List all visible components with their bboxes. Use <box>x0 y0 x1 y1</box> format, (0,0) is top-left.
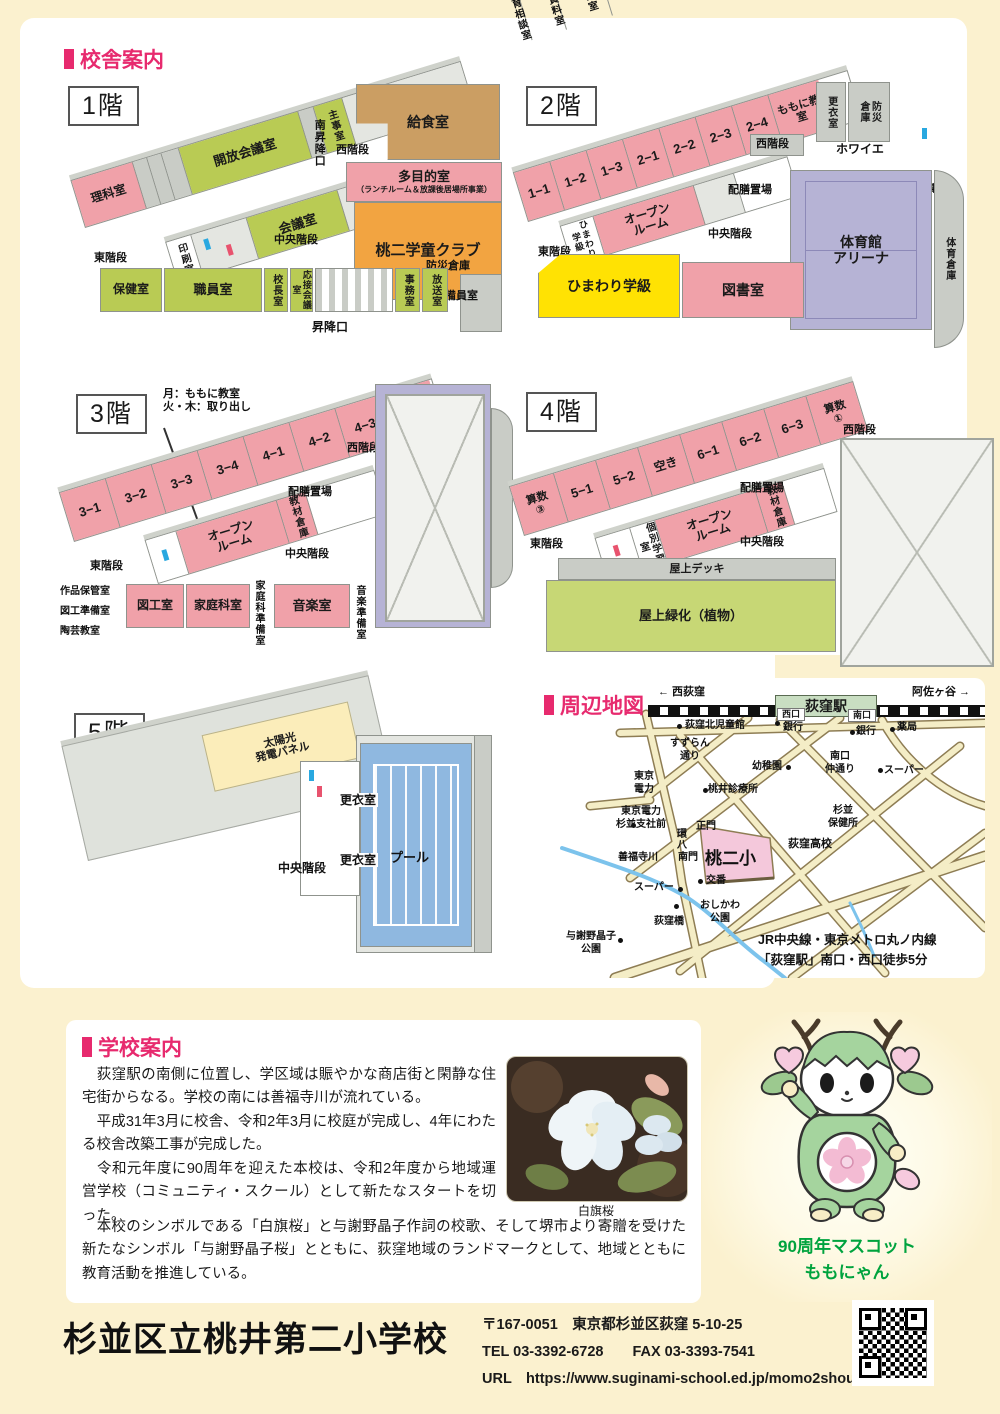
curve-band-3f <box>491 408 513 588</box>
floor-5f: 5階 太陽光 発電パネル 西階段 更衣室 更衣室 中央階段 プール <box>60 665 530 990</box>
floor-2f: 2階 1−1 1−2 1−3 2−1 2−2 2−3 2−4 ももに教室 ひまわ… <box>518 78 983 356</box>
label-higashi-kaidan-3f: 東階段 <box>90 560 123 573</box>
label-chuo-kaidan-4f: 中央階段 <box>740 536 784 549</box>
floor-tag-4f: 4階 <box>526 392 597 432</box>
photo-caption: 白旗桜 <box>506 1204 686 1218</box>
section-school-guide: 学校案内 <box>82 1032 182 1062</box>
mascot-area: 90周年マスコット ももにゃん <box>702 1012 992 1302</box>
poi-yochien: 幼稚園 <box>752 761 782 774</box>
map-panel: 周辺地図 ← 西荻窪 阿佐ヶ谷 → 荻窪駅 西口 南口 荻窪北児童館 銀行 銀行… <box>530 678 985 978</box>
qr-finder <box>859 1356 881 1378</box>
flower-photo-art <box>507 1057 687 1201</box>
label-minami-shoko: 南昇降口 <box>312 103 325 183</box>
poi-zenpukuji: 善福寺川 <box>618 852 658 865</box>
qr-code <box>852 1300 934 1386</box>
room-hoken: 保健室 <box>100 268 162 312</box>
room-tosho: 図書室 <box>682 262 804 318</box>
toilet-marker <box>203 238 211 250</box>
floor-4f: 4階 算数 ③ 5−1 5−2 空き 6−1 6−2 6−3 算数 ① 個別学習… <box>518 378 988 668</box>
label-koui-2: 更衣室 <box>338 853 378 867</box>
poi-nanmon: 南門 <box>678 852 698 865</box>
floor-tag-2f: 2階 <box>526 86 597 126</box>
room-kocho: 校長室 <box>264 268 288 312</box>
label-chuo-kaidan-3f: 中央階段 <box>285 548 329 561</box>
footer-address: 〒167-0051 東京都杉並区荻窪 5-10-25 <box>482 1312 855 1339</box>
poi-bank1: 銀行 <box>783 722 803 735</box>
label-rail-left: ← 西荻窪 <box>658 686 705 700</box>
poi-oshikawa: おしかわ 公園 <box>700 900 740 925</box>
room-jimu: 事務室 <box>395 268 420 312</box>
room-katei: 家庭科室 <box>186 584 250 628</box>
poi-dot <box>786 765 791 770</box>
room-taiiku-soko: 体育倉庫 <box>934 170 964 348</box>
label-chuo-kaidan-1f: 中央階段 <box>274 234 318 247</box>
toilet-marker <box>161 549 169 561</box>
room-zuko: 図工室 <box>126 584 184 628</box>
footer-tel-fax: TEL 03-3392-6728 FAX 03-3393-7541 <box>482 1339 855 1366</box>
room-kaigi: 会議室 <box>247 190 350 258</box>
label-pool: プール <box>390 850 429 866</box>
label-nishi-kaidan-2f: 西階段 <box>756 138 789 151</box>
label-chuo-kaidan-5f: 中央階段 <box>278 861 326 875</box>
shirahata-sakura-photo <box>506 1056 688 1202</box>
section-bar-icon <box>82 1037 92 1057</box>
ear-heart-left <box>775 1048 803 1073</box>
room-kaiho: 開放会議室 <box>179 112 313 194</box>
room-kyushoku: 給食室 <box>356 84 500 160</box>
poi-denryoku: 東京 電力 <box>634 771 654 796</box>
toilet-marker <box>613 545 621 557</box>
room-hoso: 放送室 <box>422 268 448 312</box>
floor-1f: 1階 理科室 開放会議室 主事室 教育相談室 郷土資料室 桃友会 学校支援本部室… <box>60 78 510 356</box>
changing-block <box>300 761 360 896</box>
qr-finder <box>905 1308 927 1330</box>
info-paragraph: 荻窪駅の南側に位置し、学区域は賑やかな商店街と閑静な住宅街からなる。学校の南には… <box>82 1064 496 1111</box>
poi-hokenjo: 杉並 保健所 <box>828 805 858 830</box>
poi-ogikubobashi: 荻窪橋 <box>654 916 684 929</box>
floor-tag-3f: 3階 <box>76 394 147 434</box>
room-ryokka: 屋上緑化（植物） <box>546 580 836 652</box>
label-higashi-kaidan-1f: 東階段 <box>94 252 127 265</box>
poi-shinryojo: 桃井診療所 <box>708 784 758 797</box>
label-ongaku-junbi: 音楽準備室 <box>353 564 365 660</box>
poi-shisha-mae: 東京電力 杉並支社前 <box>616 806 666 831</box>
qr-finder <box>859 1308 881 1330</box>
corridor-hatch <box>315 268 393 312</box>
label-haizen-2f: 配膳置場 <box>728 184 772 197</box>
poi-jidokan: 荻窪北児童館 <box>685 720 745 733</box>
toilet-marker <box>922 128 927 139</box>
room-tamokuteki: 多目的室 （ランチルーム＆放課後居場所事業） <box>346 162 502 202</box>
label-zuko-junbi: 図工準備室 <box>60 606 110 618</box>
poi-dot <box>775 721 780 726</box>
section-map: 周辺地図 <box>544 690 644 720</box>
poi-dot <box>674 904 679 909</box>
room-gym: 体育館 アリーナ <box>790 170 932 330</box>
section-title: 周辺地図 <box>560 690 644 720</box>
room-tamokuteki-title: 多目的室 <box>398 170 450 185</box>
poi-school: 桃二小 <box>705 848 756 869</box>
school-info-text-wide: 本校のシンボルである「白旗桜」と与謝野晶子作詞の校歌、そして堺市より寄贈を受けた… <box>82 1216 686 1286</box>
station-west-exit: 西口 <box>777 708 805 721</box>
poi-suzuran: すずらん 通り <box>670 738 710 763</box>
poi-dot <box>850 730 855 735</box>
section-bar-icon <box>64 49 74 69</box>
mascot-caption: 90周年マスコット ももにゃん <box>702 1234 992 1285</box>
toilet-marker <box>309 770 314 781</box>
info-paragraph: 本校のシンボルである「白旗桜」と与謝野晶子作詞の校歌、そして堺市より寄贈を受けた… <box>82 1216 686 1286</box>
label-sakuhin: 作品保管室 <box>60 586 110 598</box>
station-south-exit: 南口 <box>848 709 876 722</box>
toilet-marker <box>317 786 322 797</box>
room-tamokuteki-sub: （ランチルーム＆放課後居場所事業） <box>356 185 492 194</box>
section-title: 校舎案内 <box>80 44 164 74</box>
label-katei-junbi: 家庭科準備室 <box>252 566 264 660</box>
poi-super1: スーパー <box>884 765 924 778</box>
label-chuo-kaidan-2f: 中央階段 <box>708 228 752 241</box>
label-nishi-kaidan-4f: 西階段 <box>843 424 876 437</box>
school-info-panel: 学校案内 荻窪駅の南側に位置し、学区域は賑やかな商店街と閑静な住宅街からなる。学… <box>66 1020 701 1303</box>
poi-bank2: 銀行 <box>856 726 876 739</box>
room-gym-label: 体育館 アリーナ <box>833 234 889 266</box>
poi-koban: 交番 <box>706 875 726 888</box>
room-bosai-2f: 防災 倉庫 <box>848 82 890 142</box>
room-open-4f: オープン ルーム <box>655 490 768 563</box>
poi-dot <box>618 938 623 943</box>
info-paragraph: 平成31年3月に校舎、令和2年3月に校庭が完成し、4年にわたる校舎改築工事が完成… <box>82 1111 496 1158</box>
void-structure-3f <box>385 394 485 622</box>
room-himawari: ひまわり学級 <box>538 254 680 318</box>
footer-url: URL https://www.suginami-school.ed.jp/mo… <box>482 1366 855 1393</box>
label-nishi-kaidan: 西階段 <box>336 144 369 157</box>
poi-koko: 荻窪高校 <box>788 838 832 852</box>
void-structure-4f <box>840 438 994 667</box>
room-osetsu: 応接会議室 <box>290 268 313 312</box>
pool-lanes <box>373 764 459 926</box>
label-3f-note: 月：ももに教室 火・木：取り出し <box>163 388 251 414</box>
label-howaie: ホワイエ <box>836 142 884 156</box>
label-haizen-4f: 配膳置場 <box>740 482 784 495</box>
section-bar-icon <box>544 695 554 715</box>
label-koui-1: 更衣室 <box>338 793 378 807</box>
map-access-note: JR中央線・東京メトロ丸ノ内線 「荻窪駅」南口・西口徒歩5分 <box>758 930 936 970</box>
poi-dot <box>698 879 703 884</box>
room-deck: 屋上デッキ <box>558 558 836 580</box>
room-shokuin: 職員室 <box>164 268 262 312</box>
poi-dot <box>678 887 683 892</box>
school-name: 杉並区立桃井第二小学校 <box>63 1320 448 1361</box>
poi-seimon: 正門 <box>696 821 716 834</box>
poi-dot <box>890 727 895 732</box>
floor-tag-1f: 1階 <box>68 86 139 126</box>
school-info-text-main: 荻窪駅の南側に位置し、学区域は賑やかな商店街と閑静な住宅街からなる。学校の南には… <box>82 1064 496 1228</box>
label-haizen-3f: 配膳置場 <box>288 486 332 499</box>
station-name: 荻窪駅 <box>805 698 847 714</box>
label-togei: 陶芸教室 <box>60 626 100 638</box>
poi-dot <box>878 768 883 773</box>
mascot-momonyan <box>757 1017 937 1222</box>
room-koui-2f: 更衣室 <box>816 82 846 142</box>
poi-super2: スーパー <box>634 882 674 895</box>
section-title: 学校案内 <box>98 1032 182 1062</box>
footer-contact: 〒167-0051 東京都杉並区荻窪 5-10-25 TEL 03-3392-6… <box>482 1312 855 1392</box>
poi-minamiguchi: 南口 仲通り <box>825 751 855 776</box>
poi-yakkyoku: 薬局 <box>897 722 917 735</box>
label-higashi-kaidan-4f: 東階段 <box>530 538 563 551</box>
poi-yosano: 与謝野晶子 公園 <box>566 931 616 956</box>
poi-dot <box>677 724 682 729</box>
label-shoko: 昇降口 <box>312 320 348 334</box>
toilet-marker <box>226 244 234 256</box>
label-rail-right: 阿佐ヶ谷 → <box>912 686 970 700</box>
room-pool <box>360 743 472 947</box>
ear-heart-right <box>891 1048 919 1073</box>
section-building-guide: 校舎案内 <box>64 44 164 74</box>
room-ongaku: 音楽室 <box>274 584 350 628</box>
pool-side-band <box>474 735 492 953</box>
